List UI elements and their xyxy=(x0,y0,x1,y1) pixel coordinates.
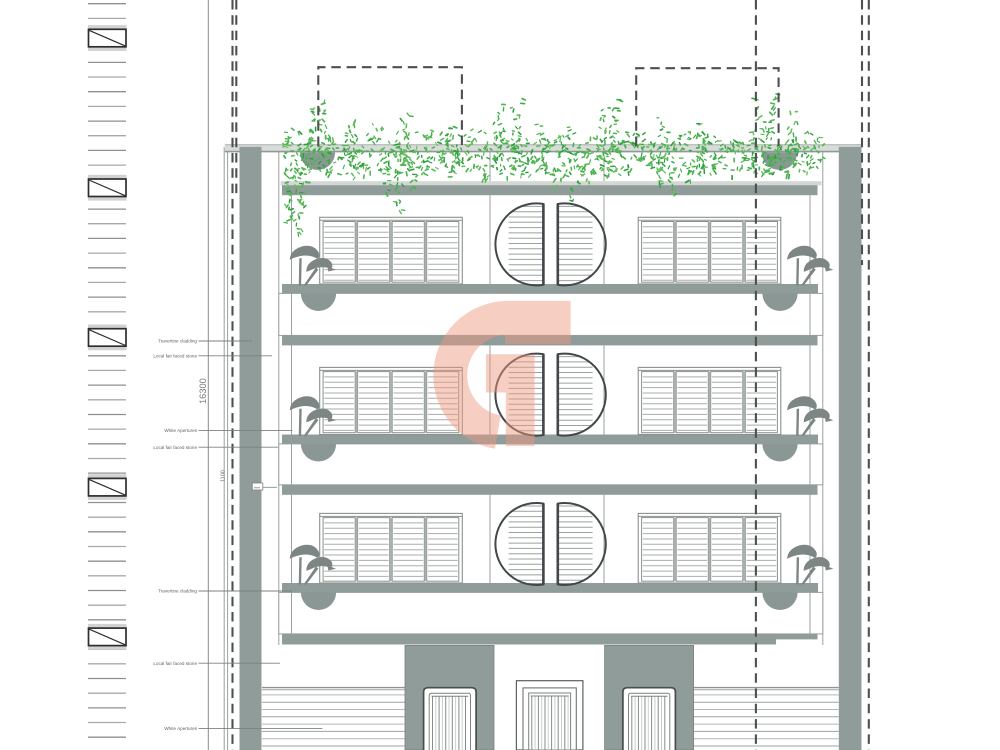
svg-text:Travertine cladding: Travertine cladding xyxy=(158,589,197,594)
svg-text:White Apertures: White Apertures xyxy=(164,428,197,433)
svg-text:Travertine cladding: Travertine cladding xyxy=(158,339,197,344)
svg-text:16300: 16300 xyxy=(198,378,208,404)
svg-text:Local fair faced stone: Local fair faced stone xyxy=(153,445,197,450)
svg-text:White Apertures: White Apertures xyxy=(164,726,197,731)
svg-text:Local fair faced stone: Local fair faced stone xyxy=(153,353,197,358)
svg-text:Local fair faced stone: Local fair faced stone xyxy=(153,661,197,666)
svg-text:1100: 1100 xyxy=(221,470,227,482)
